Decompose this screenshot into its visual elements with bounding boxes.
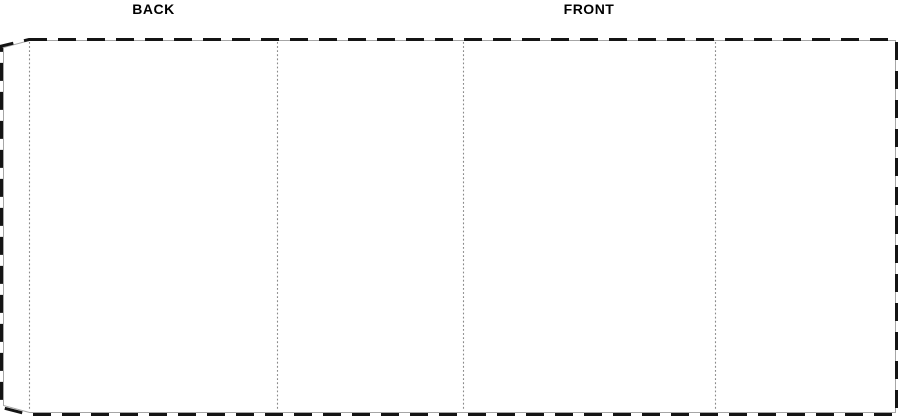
front-panel-label: FRONT (463, 1, 715, 17)
cut-line (2, 40, 897, 415)
sheet-outline (4, 41, 896, 413)
dieline-drawing (0, 0, 900, 420)
dieline-template-canvas: BACK FRONT (0, 0, 900, 420)
back-panel-label: BACK (30, 1, 277, 17)
